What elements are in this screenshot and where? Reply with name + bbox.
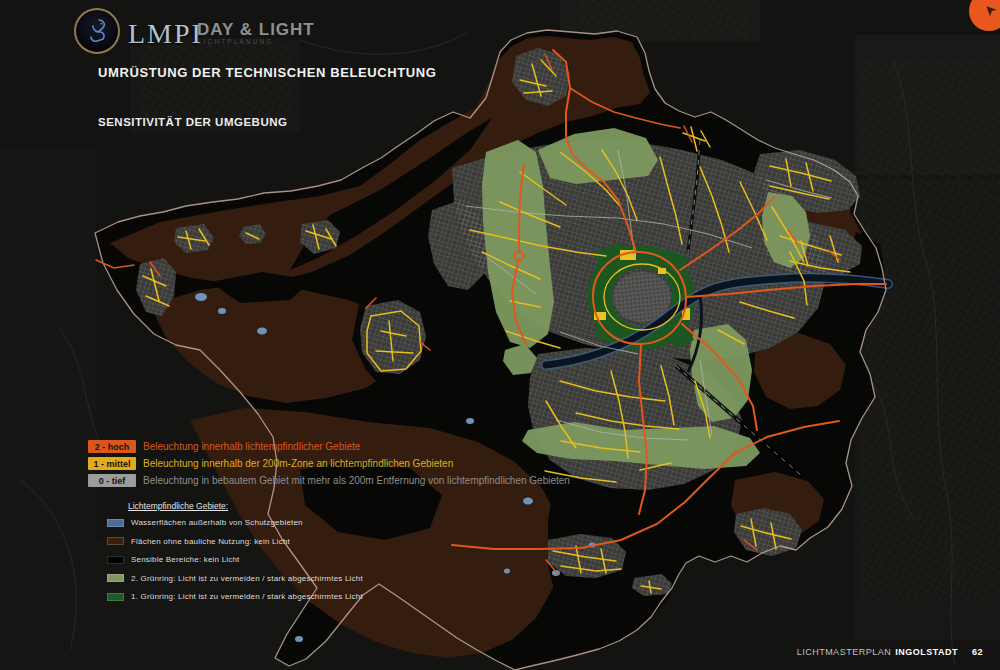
legend-sensitivity-levels: 2 - hoch Beleuchtung innerhalb lichtempf… [88,440,570,487]
footer: LICHTMASTERPLANINGOLSTADT62 [797,647,983,657]
greenring1-swatch [107,593,124,601]
legend-label-mid: Beleuchtung innerhalb der 200m-Zone an l… [143,458,453,469]
legend-area-greenring2: 2. Grünring: Licht ist zu vermeiden / st… [107,574,363,583]
legend-badge-high: 2 - hoch [88,440,136,453]
legend-area-sensitive: Sensible Bereiche: kein Licht [107,555,363,564]
water-swatch [107,519,124,527]
sensitive-swatch [107,556,124,564]
footer-city: INGOLSTADT [895,647,958,657]
cursor-arrow-icon: ➤ [980,0,1000,20]
legend-level-mid: 1 - mittel Beleuchtung innerhalb der 200… [88,457,570,470]
legend-label-low: Beleuchtung in bebautem Gebiet mit mehr … [143,475,570,486]
footer-label: LICHTMASTERPLAN [797,647,892,657]
legend-area-greenring1: 1. Grünring: Licht ist zu vermeiden / st… [107,592,363,601]
legend-area-unbuilt: Flächen ohne bauliche Nutzung: kein Lich… [107,537,363,546]
page-subtitle: SENSITIVITÄT DER UMGEBUNG [98,116,287,128]
legend-label-high: Beleuchtung innerhalb lichtempfindlicher… [143,441,360,452]
legend-area-greenring1-label: 1. Grünring: Licht ist zu vermeiden / st… [131,592,363,601]
legend-badge-low: 0 - tief [88,474,136,487]
legend-area-greenring2-label: 2. Grünring: Licht ist zu vermeiden / st… [131,574,363,583]
legend-area-water-label: Wasserflächen außerhalb von Schutzgebiet… [131,518,303,527]
legend-area-water: Wasserflächen außerhalb von Schutzgebiet… [107,518,363,527]
legend-level-high: 2 - hoch Beleuchtung innerhalb lichtempf… [88,440,570,453]
brand-subtitle: LICHTPLANUNG [198,38,273,45]
greenring2-swatch [107,574,124,582]
page-number: 62 [972,647,983,657]
legend-level-low: 0 - tief Beleuchtung in bebautem Gebiet … [88,474,570,487]
slide: LMPI DAY & LIGHT LICHTPLANUNG UMRÜSTUNG … [0,0,1000,670]
unbuilt-swatch [107,537,124,545]
lion-crest-icon [84,17,110,45]
legend-sensitive-areas: Lichtempfindliche Gebiete: Wasserflächen… [107,501,363,611]
legend-area-sensitive-label: Sensible Bereiche: kein Licht [131,555,240,564]
logo-badge [74,8,120,54]
legend-badge-mid: 1 - mittel [88,457,136,470]
legend-areas-heading: Lichtempfindliche Gebiete: [128,501,363,511]
page-title: UMRÜSTUNG DER TECHNISCHEN BELEUCHTUNG [98,65,437,80]
logo-text: LMPI [128,18,203,50]
legend-area-unbuilt-label: Flächen ohne bauliche Nutzung: kein Lich… [131,537,290,546]
brand-name: DAY & LIGHT [197,20,315,40]
